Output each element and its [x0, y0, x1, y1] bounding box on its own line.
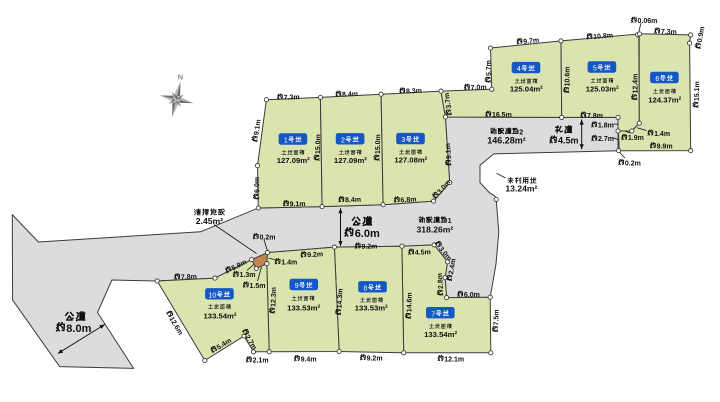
svg-text:2: 2 [341, 137, 345, 144]
svg-text:1.5m: 1.5m [249, 283, 265, 290]
svg-text:12.3m: 12.3m [270, 287, 278, 307]
svg-text:124.37m²: 124.37m² [648, 96, 681, 105]
svg-text:7.0m: 7.0m [471, 84, 487, 92]
svg-text:4.5m: 4.5m [415, 249, 431, 257]
svg-text:14.3m: 14.3m [337, 288, 345, 308]
svg-text:6.0m: 6.0m [355, 228, 380, 240]
svg-text:15.1m: 15.1m [694, 81, 701, 101]
svg-text:16.5m: 16.5m [492, 112, 512, 119]
svg-text:8: 8 [363, 285, 367, 292]
svg-text:10: 10 [208, 292, 216, 299]
svg-text:13.24m²: 13.24m² [505, 184, 537, 194]
svg-text:133.54m²: 133.54m² [204, 311, 237, 320]
svg-text:2.7m: 2.7m [598, 136, 614, 143]
svg-text:9.1m: 9.1m [445, 143, 453, 159]
svg-text:1.4m: 1.4m [281, 259, 297, 266]
svg-text:8.3m: 8.3m [406, 88, 422, 96]
svg-text:12.1m: 12.1m [444, 356, 464, 363]
svg-text:0.2m: 0.2m [625, 160, 641, 167]
svg-text:2.1m: 2.1m [253, 358, 269, 365]
svg-text:1.8m: 1.8m [598, 123, 614, 130]
svg-text:1.3m: 1.3m [239, 272, 255, 279]
svg-text:9.9m: 9.9m [657, 143, 673, 150]
svg-text:133.53m²: 133.53m² [287, 303, 320, 312]
svg-text:0.2m: 0.2m [259, 234, 275, 241]
svg-text:8.4m: 8.4m [342, 91, 358, 99]
svg-text:146.28m²: 146.28m² [487, 136, 526, 146]
svg-text:15.0m: 15.0m [315, 134, 322, 154]
svg-text:127.09m²: 127.09m² [277, 156, 310, 165]
svg-text:133.53m²: 133.53m² [355, 304, 388, 313]
svg-text:7.5m: 7.5m [493, 309, 500, 325]
svg-text:7.3m: 7.3m [661, 29, 677, 36]
svg-text:133.54m²: 133.54m² [424, 330, 457, 339]
svg-text:1: 1 [284, 138, 288, 145]
svg-text:2.45m²: 2.45m² [196, 216, 223, 226]
svg-text:9.2m: 9.2m [307, 251, 323, 259]
svg-text:1.9m: 1.9m [628, 135, 644, 142]
svg-text:8.4m: 8.4m [345, 197, 361, 205]
svg-text:6.0m: 6.0m [254, 177, 261, 193]
svg-text:8.0m: 8.0m [66, 323, 91, 335]
svg-text:318.26m²: 318.26m² [417, 224, 454, 234]
svg-text:0.06m: 0.06m [638, 18, 658, 25]
svg-text:4: 4 [517, 66, 521, 73]
svg-text:7.3m: 7.3m [284, 94, 300, 102]
svg-text:127.09m²: 127.09m² [334, 156, 367, 165]
svg-text:7: 7 [431, 311, 435, 318]
svg-text:127.08m²: 127.08m² [394, 156, 427, 165]
svg-text:5.7m: 5.7m [486, 60, 493, 76]
svg-text:7.8m: 7.8m [587, 113, 603, 120]
svg-text:14.6m: 14.6m [406, 292, 413, 312]
svg-text:9.4m: 9.4m [301, 356, 317, 363]
svg-text:125.04m²: 125.04m² [510, 85, 543, 94]
svg-text:9.2m: 9.2m [367, 355, 383, 362]
svg-text:9.2m: 9.2m [361, 243, 377, 250]
svg-text:5: 5 [593, 66, 597, 73]
svg-text:6.8m: 6.8m [400, 196, 416, 204]
svg-text:2.8m: 2.8m [437, 273, 445, 289]
svg-text:4.5m: 4.5m [558, 136, 579, 146]
svg-text:9: 9 [295, 283, 299, 290]
svg-text:12.4m: 12.4m [632, 74, 639, 94]
svg-text:1.4m: 1.4m [654, 131, 670, 138]
svg-text:6.0m: 6.0m [464, 292, 480, 299]
svg-text:9.1m: 9.1m [290, 201, 306, 208]
svg-text:N: N [178, 72, 183, 81]
svg-text:15.0m: 15.0m [375, 134, 382, 154]
svg-text:6: 6 [655, 76, 659, 83]
svg-text:3: 3 [401, 137, 405, 144]
svg-text:125.03m²: 125.03m² [586, 84, 619, 93]
svg-text:10.6m: 10.6m [564, 66, 571, 86]
svg-text:7.8m: 7.8m [181, 274, 197, 282]
